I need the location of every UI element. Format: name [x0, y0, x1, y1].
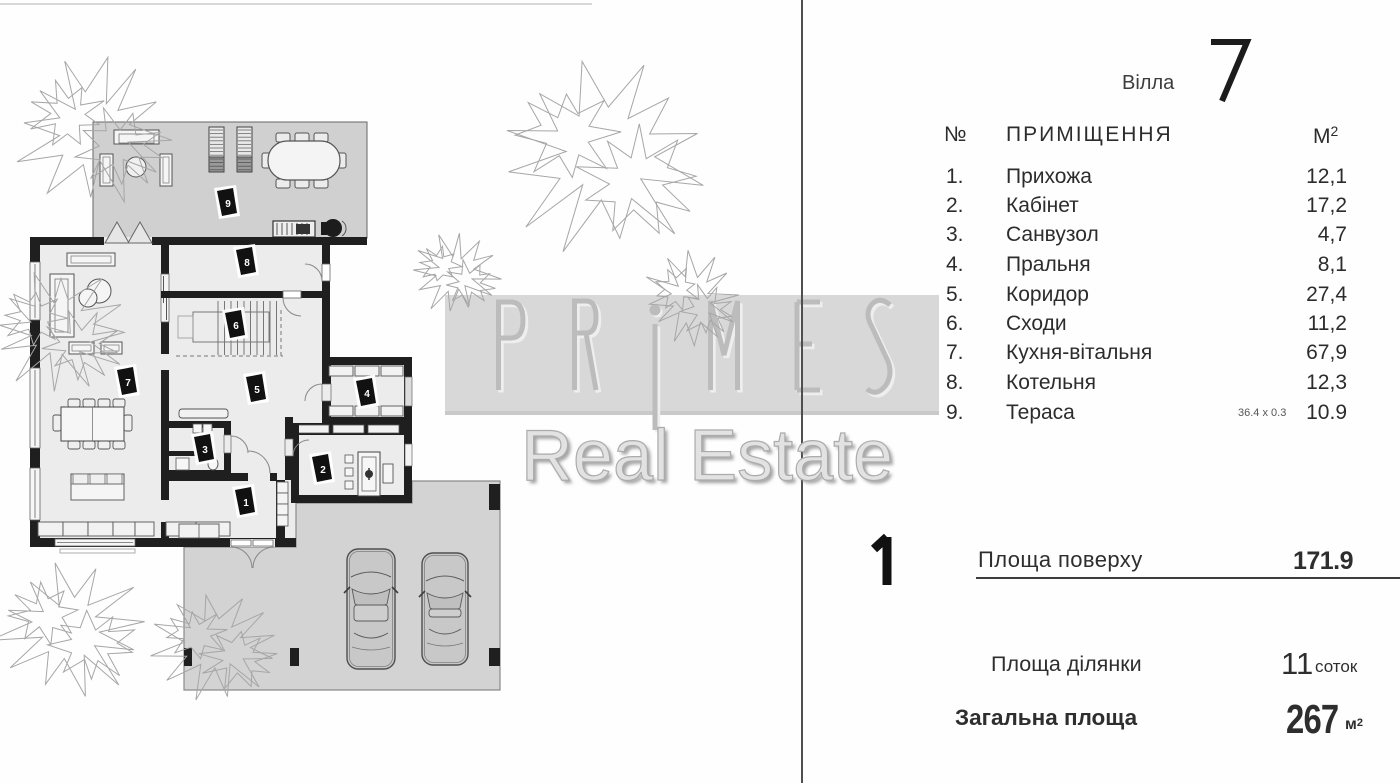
- svg-text:2: 2: [320, 465, 326, 476]
- svg-text:4: 4: [364, 389, 370, 400]
- svg-text:3: 3: [202, 445, 208, 456]
- svg-text:1: 1: [243, 498, 249, 509]
- svg-text:6: 6: [233, 321, 239, 332]
- svg-text:5: 5: [254, 385, 260, 396]
- svg-text:8: 8: [244, 258, 250, 269]
- svg-text:7: 7: [125, 378, 131, 389]
- svg-text:9: 9: [225, 199, 231, 210]
